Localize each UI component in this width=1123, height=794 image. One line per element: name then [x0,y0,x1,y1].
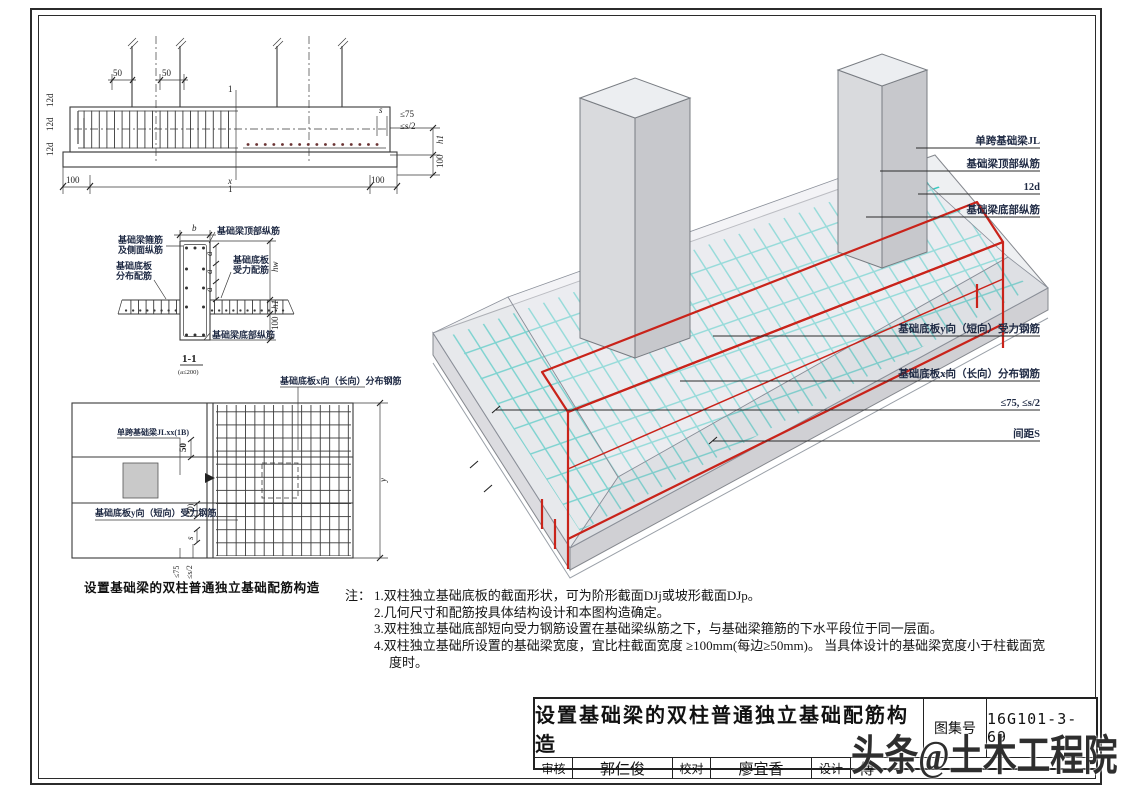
reviewer-name: 郭仁俊 [573,758,673,779]
dim-y: y [378,478,388,483]
note-item-1: 1.双柱独立基础底板的截面形状，可为阶形截面DJj或坡形截面DJp。 [374,588,1047,605]
view-title: 1-1 [182,353,197,365]
dim-100-right: 100 [371,175,385,185]
label-beam: 单跨基础梁JLxx(1B) [117,427,189,437]
label-slab-dist-2: 分布配筋 [116,270,152,281]
iso-label-12d: 12d [1024,182,1041,193]
notes-list: 1.双柱独立基础底板的截面形状，可为阶形截面DJj或坡形截面DJp。 2.几何尺… [374,588,1047,671]
iso-label-beam: 单跨基础梁JL [975,134,1040,147]
section-right-dims: hw h1 100 [210,238,294,343]
dim-50-right: 50 [162,68,172,78]
dim-x: x [227,176,232,186]
dim-a-1: a [204,251,214,256]
proofreader-name: 廖宜香 [711,758,812,779]
hook-12d-3: 12d [45,142,55,156]
dim-100-left: 100 [66,175,80,185]
label-slab-force-2: 受力配筋 [233,264,269,275]
dim-50-plan: 50 [178,443,188,453]
iso-label-le75: ≤75, ≤s/2 [1000,398,1040,409]
iso-label-top-bars: 基础梁顶部纵筋 [966,157,1041,170]
hook-12d-2: 12d [45,117,55,131]
label-slab-force-1: 基础底板 [232,254,270,265]
label-stirrup-1: 基础梁箍筋 [117,234,163,245]
dim-le75: ≤75 [400,109,414,119]
section-labels: 基础梁顶部纵筋 基础梁箍筋 及侧面纵筋 基础底板 分布配筋 基础底板 受力配筋 … [115,225,280,340]
dim-s-plan: s [185,536,195,540]
plan-dim-y: y [353,400,388,561]
section-dim-b: b [174,223,216,240]
note-item-4: 4.双柱独立基础所设置的基础梁宽度，宜比柱截面宽度 ≥100mm(每边≥50mm… [374,638,1047,671]
plan-rebar-grid [216,405,351,556]
notes-prefix: 注： [345,588,371,671]
note-item-2: 2.几何尺寸和配筋按具体结构设计和本图构造确定。 [374,605,1047,622]
watermark-text: 头条@土木工程院 [851,722,1117,783]
elevation-beam [63,107,397,167]
plan-drawing: y 基础底板x向（长向）分布钢筋 单跨基础梁JLxx(1B) 50 基础底板y向… [58,372,403,580]
plan-caption: 设置基础梁的双柱普通独立基础配筋构造 [84,577,320,596]
label-force-bars: 基础底板y向（短向）受力钢筋 [94,507,217,518]
label-beam-top-bars: 基础梁顶部纵筋 [216,225,280,236]
iso-label-spacing: 间距S [1013,427,1040,440]
dim-a-2: a [204,269,214,274]
plan-column-left [123,463,158,498]
proof-label: 校对 [673,758,711,779]
notes-block: 注： 1.双柱独立基础底板的截面形状，可为阶形截面DJj或坡形截面DJp。 2.… [345,588,1047,671]
design-label: 设计 [812,758,851,779]
label-dist-bars: 基础底板x向（长向）分布钢筋 [279,375,402,386]
label-slab-dist-1: 基础底板 [115,260,153,271]
dim-s: s [379,105,383,115]
drawing-sheet: 1 1 50 50 100 x 100 h1 100 ≤75 ≤s/2 s 12… [0,0,1123,794]
dim-50-paren: (50) [186,503,195,517]
dim-a-3: a [204,287,214,292]
iso-label-dist-bars: 基础底板x向（长向）分布钢筋 [897,367,1040,380]
label-stirrup-2: 及侧面纵筋 [118,244,163,255]
dim-le-s2: ≤s/2 [400,121,415,131]
dim-hw: hw [270,261,280,272]
iso-3d-view: 单跨基础梁JL 基础梁顶部纵筋 12d 基础梁底部纵筋 基础底板y向（短向）受力… [418,42,1063,574]
cut-label-top: 1 [228,84,233,94]
iso-column-right [838,54,927,268]
review-label: 审核 [535,758,573,779]
dim-b: b [192,223,197,233]
iso-label-force-bars: 基础底板y向（短向）受力钢筋 [897,322,1040,335]
dim-100-sec: 100 [270,316,280,330]
note-item-3: 3.双柱独立基础底部短向受力钢筋设置在基础梁纵筋之下，与基础梁箍筋的下水平段位于… [374,621,1047,638]
dim-50-left: 50 [113,68,123,78]
iso-column-left [580,78,690,358]
section-1-1-drawing: b 基础梁顶部纵筋 基础梁箍筋 及侧面纵筋 基础底板 分布配筋 基础底板 受力配… [100,212,332,380]
iso-label-bottom-bars: 基础梁底部纵筋 [966,203,1041,216]
dim-h1-sec: h1 [270,300,280,309]
label-beam-bottom-bars: 基础梁底部纵筋 [211,329,275,340]
elevation-drawing: 1 1 50 50 100 x 100 h1 100 ≤75 ≤s/2 s 12… [38,32,450,214]
hook-12d-1: 12d [45,93,55,107]
section-bar-dots [185,247,205,337]
